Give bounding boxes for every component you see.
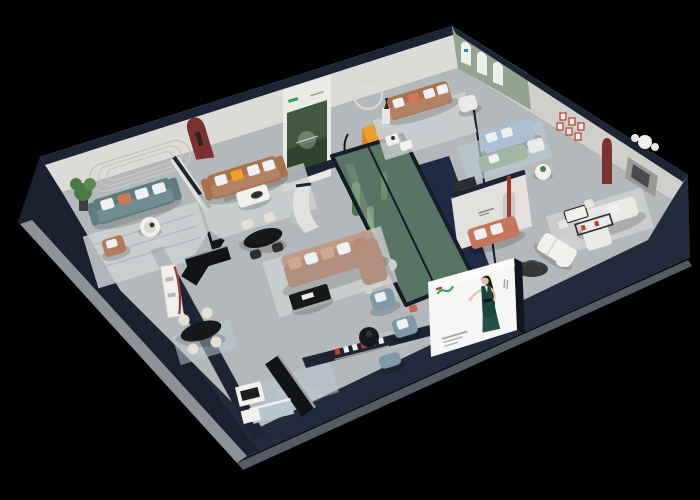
pouf-white: [556, 257, 570, 267]
red-column: [507, 176, 511, 222]
chair-black-round: [525, 261, 539, 272]
showroom-render: [0, 0, 700, 500]
side-table-black-round: [359, 327, 379, 347]
table-plant-icon: [540, 166, 546, 172]
red-arch-niche-right: [602, 138, 612, 184]
dining-chair-cream: [211, 337, 222, 348]
banner-logo-icon: [464, 49, 468, 52]
plant-pot: [79, 200, 88, 211]
dining-chair-cream: [202, 308, 213, 319]
table-decor-icon: [150, 223, 155, 228]
dining-chair-cream: [188, 344, 199, 355]
dining-chair-cream: [179, 315, 190, 326]
screenshot-canvas: Isometric cutaway 3D render of a furnitu…: [0, 0, 700, 500]
